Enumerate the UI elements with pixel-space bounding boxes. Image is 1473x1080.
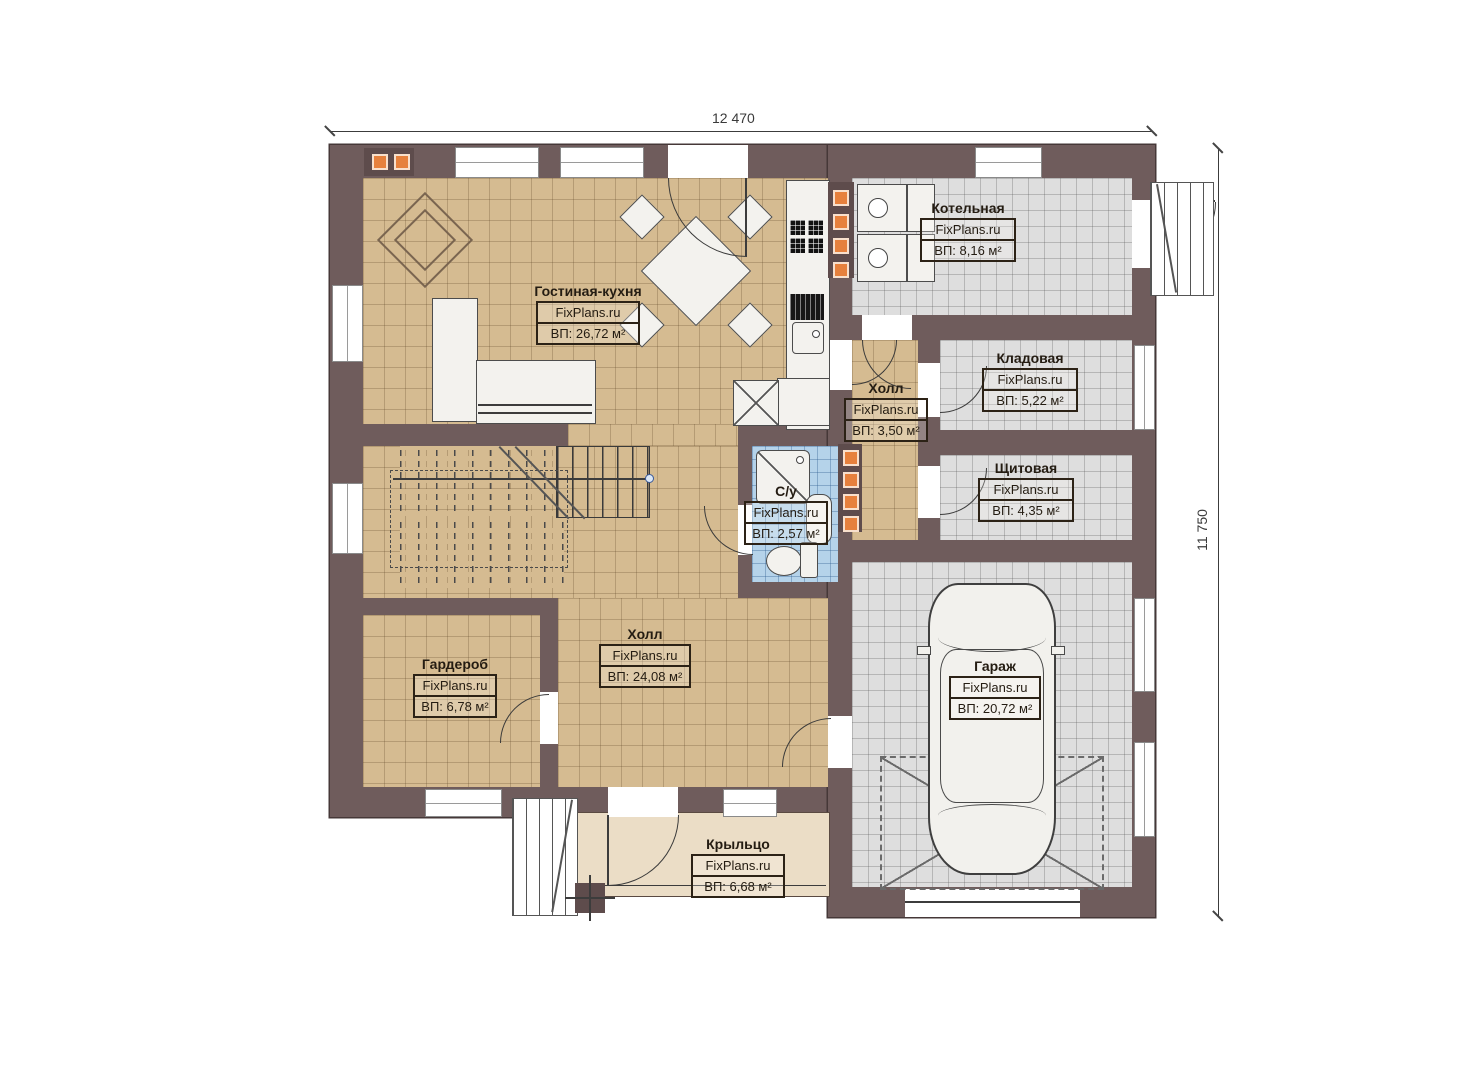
vent-1 <box>372 154 388 170</box>
window-left-living <box>332 285 363 362</box>
stove-burner-3 <box>790 238 805 253</box>
floor-plan: Гостиная-кухня FixPlans.ru ВП: 26,72 м² … <box>0 0 1473 1080</box>
vent-6 <box>833 262 849 278</box>
room-label-boiler: Котельная FixPlans.ru ВП: 8,16 м² <box>910 200 1026 262</box>
room-name-garage: Гараж <box>940 658 1050 674</box>
room-label-bathroom: С/у FixPlans.ru ВП: 2,57 м² <box>740 483 832 545</box>
room-name-switchroom: Щитовая <box>968 460 1084 476</box>
dimension-line-right <box>1218 148 1219 916</box>
car-rear-window <box>938 804 1046 827</box>
window-boiler <box>975 147 1042 178</box>
room-name-storage: Кладовая <box>972 350 1088 366</box>
room-brand-small-hall: FixPlans.ru <box>846 400 925 419</box>
stove-burner-1 <box>790 220 805 235</box>
sofa-back-line-1 <box>478 404 592 406</box>
room-area-wardrobe: ВП: 6,78 м² <box>415 695 495 716</box>
room-area-hall: ВП: 24,08 м² <box>601 665 689 686</box>
room-name-boiler: Котельная <box>910 200 1026 216</box>
dimension-line-top <box>330 131 1152 132</box>
door-leaf-porch <box>607 815 609 885</box>
car-mirror-right <box>1051 646 1065 655</box>
window-storage <box>1134 345 1155 430</box>
doorway-garage <box>828 716 852 768</box>
room-name-porch: Крыльцо <box>682 836 794 852</box>
door-leaf-living-entry <box>745 178 747 256</box>
room-name-wardrobe: Гардероб <box>405 656 505 672</box>
room-name-living: Гостиная-кухня <box>525 283 651 299</box>
window-hall-bottom <box>723 789 777 817</box>
vent-unit-box <box>733 380 779 426</box>
room-box-storage: FixPlans.ru ВП: 5,22 м² <box>982 368 1079 412</box>
opening-living-terrace-door <box>668 145 748 178</box>
garage-door-line <box>905 901 1080 903</box>
room-brand-hall: FixPlans.ru <box>601 646 689 665</box>
room-box-switchroom: FixPlans.ru ВП: 4,35 м² <box>978 478 1075 522</box>
room-box-bathroom: FixPlans.ru ВП: 2,57 м² <box>744 501 827 545</box>
shower-drain <box>796 456 804 464</box>
stairs-start-marker <box>645 474 654 483</box>
car-windshield <box>938 623 1046 652</box>
kitchen-sink-drainer <box>790 294 824 320</box>
vent-8 <box>843 472 859 488</box>
room-area-small-hall: ВП: 3,50 м² <box>846 419 925 440</box>
window-left-stairs <box>332 483 363 554</box>
opening-porch-door <box>608 787 678 817</box>
room-label-storage: Кладовая FixPlans.ru ВП: 5,22 м² <box>972 350 1088 412</box>
stairs-opening-outline <box>390 470 568 568</box>
dimension-height-label: 11 750 <box>1194 500 1210 560</box>
room-name-hall: Холл <box>590 626 700 642</box>
stairs-direction-line <box>393 478 648 480</box>
stove-burner-4 <box>808 238 823 253</box>
room-name-small-hall: Холл <box>840 380 932 396</box>
room-name-bathroom: С/у <box>740 483 832 499</box>
sofa-side <box>432 298 478 422</box>
room-label-hall: Холл FixPlans.ru ВП: 24,08 м² <box>590 626 700 688</box>
window-wardrobe <box>425 789 502 817</box>
room-box-wardrobe: FixPlans.ru ВП: 6,78 м² <box>413 674 497 718</box>
room-label-garage: Гараж FixPlans.ru ВП: 20,72 м² <box>940 658 1050 720</box>
window-garage-2 <box>1134 742 1155 837</box>
room-area-storage: ВП: 5,22 м² <box>984 389 1077 410</box>
room-box-small-hall: FixPlans.ru ВП: 3,50 м² <box>844 398 927 442</box>
boiler-appliance-2-drum <box>868 248 888 268</box>
window-garage-1 <box>1134 598 1155 692</box>
room-area-porch: ВП: 6,68 м² <box>693 875 783 896</box>
room-label-small-hall: Холл FixPlans.ru ВП: 3,50 м² <box>840 380 932 442</box>
toilet-tank <box>800 542 818 578</box>
room-area-living: ВП: 26,72 м² <box>538 322 639 343</box>
car-mirror-left <box>917 646 931 655</box>
room-brand-boiler: FixPlans.ru <box>922 220 1015 239</box>
stove-burner-2 <box>808 220 823 235</box>
porch-column-axis-v <box>589 875 591 921</box>
room-area-garage: ВП: 20,72 м² <box>951 697 1039 718</box>
room-box-hall: FixPlans.ru ВП: 24,08 м² <box>599 644 691 688</box>
toilet-bowl <box>766 546 802 576</box>
room-brand-bathroom: FixPlans.ru <box>746 503 825 522</box>
vent-5 <box>833 238 849 254</box>
room-area-boiler: ВП: 8,16 м² <box>922 239 1015 260</box>
room-label-switchroom: Щитовая FixPlans.ru ВП: 4,35 м² <box>968 460 1084 522</box>
room-box-boiler: FixPlans.ru ВП: 8,16 м² <box>920 218 1017 262</box>
vent-10 <box>843 516 859 532</box>
room-label-porch: Крыльцо FixPlans.ru ВП: 6,68 м² <box>682 836 794 898</box>
room-brand-living: FixPlans.ru <box>538 303 639 322</box>
car-top-view <box>928 583 1056 875</box>
room-box-porch: FixPlans.ru ВП: 6,68 м² <box>691 854 785 898</box>
room-box-garage: FixPlans.ru ВП: 20,72 м² <box>949 676 1041 720</box>
vent-4 <box>833 214 849 230</box>
room-brand-porch: FixPlans.ru <box>693 856 783 875</box>
room-label-wardrobe: Гардероб FixPlans.ru ВП: 6,78 м² <box>405 656 505 718</box>
window-living-2 <box>560 147 644 178</box>
doorway-boiler <box>862 315 912 340</box>
kitchen-cabinet <box>777 378 830 426</box>
boiler-appliance-1-drum <box>868 198 888 218</box>
room-brand-wardrobe: FixPlans.ru <box>415 676 495 695</box>
kitchen-sink-basin <box>792 322 824 354</box>
window-living-1 <box>455 147 539 178</box>
floor-passage <box>568 424 738 446</box>
vent-2 <box>394 154 410 170</box>
stairs-upper-run <box>556 446 650 518</box>
room-brand-switchroom: FixPlans.ru <box>980 480 1073 499</box>
vent-9 <box>843 494 859 510</box>
room-box-living: FixPlans.ru ВП: 26,72 м² <box>536 301 641 345</box>
room-area-bathroom: ВП: 2,57 м² <box>746 522 825 543</box>
opening-garage-door <box>905 889 1080 917</box>
sofa-back-line-2 <box>478 412 592 414</box>
room-brand-garage: FixPlans.ru <box>951 678 1039 697</box>
kitchen-faucet <box>812 330 820 338</box>
room-label-living: Гостиная-кухня FixPlans.ru ВП: 26,72 м² <box>525 283 651 345</box>
doorway-switchroom <box>918 466 940 518</box>
sofa-main <box>476 360 596 424</box>
vent-3 <box>833 190 849 206</box>
room-brand-storage: FixPlans.ru <box>984 370 1077 389</box>
vent-7 <box>843 450 859 466</box>
dimension-width-label: 12 470 <box>712 110 755 126</box>
room-area-switchroom: ВП: 4,35 м² <box>980 499 1073 520</box>
